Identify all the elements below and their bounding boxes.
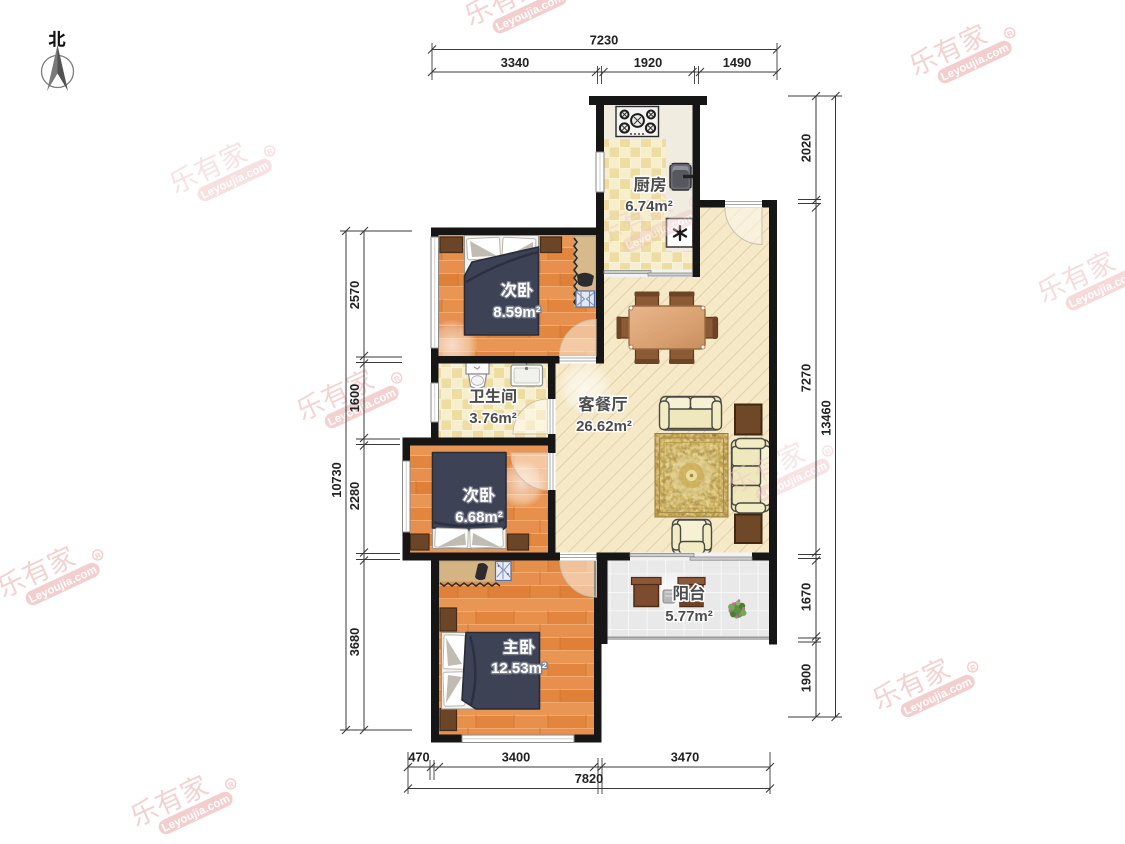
- svg-text:2280: 2280: [347, 482, 362, 510]
- svg-text:3340: 3340: [501, 55, 529, 70]
- svg-text:5.77m²: 5.77m²: [665, 608, 713, 625]
- svg-text:10730: 10730: [329, 462, 344, 498]
- svg-text:3400: 3400: [502, 750, 530, 765]
- svg-text:1490: 1490: [723, 55, 751, 70]
- svg-text:13460: 13460: [819, 400, 834, 436]
- svg-text:7820: 7820: [575, 771, 603, 786]
- svg-text:2020: 2020: [799, 134, 814, 162]
- svg-text:6.68m²: 6.68m²: [455, 509, 503, 526]
- svg-text:7270: 7270: [799, 364, 814, 392]
- svg-text:1900: 1900: [799, 664, 814, 692]
- svg-text:2570: 2570: [347, 281, 362, 309]
- svg-text:1920: 1920: [634, 55, 662, 70]
- svg-text:26.62m²: 26.62m²: [576, 418, 632, 435]
- svg-text:470: 470: [408, 750, 429, 765]
- svg-text:6.74m²: 6.74m²: [625, 198, 673, 215]
- svg-text:3.76m²: 3.76m²: [469, 410, 517, 427]
- svg-text:8.59m²: 8.59m²: [493, 304, 541, 321]
- svg-text:12.53m²: 12.53m²: [491, 660, 547, 677]
- svg-text:7230: 7230: [590, 33, 618, 48]
- svg-text:1600: 1600: [347, 384, 362, 412]
- svg-text:1670: 1670: [799, 583, 814, 611]
- svg-text:3470: 3470: [671, 750, 699, 765]
- svg-text:3680: 3680: [347, 628, 362, 656]
